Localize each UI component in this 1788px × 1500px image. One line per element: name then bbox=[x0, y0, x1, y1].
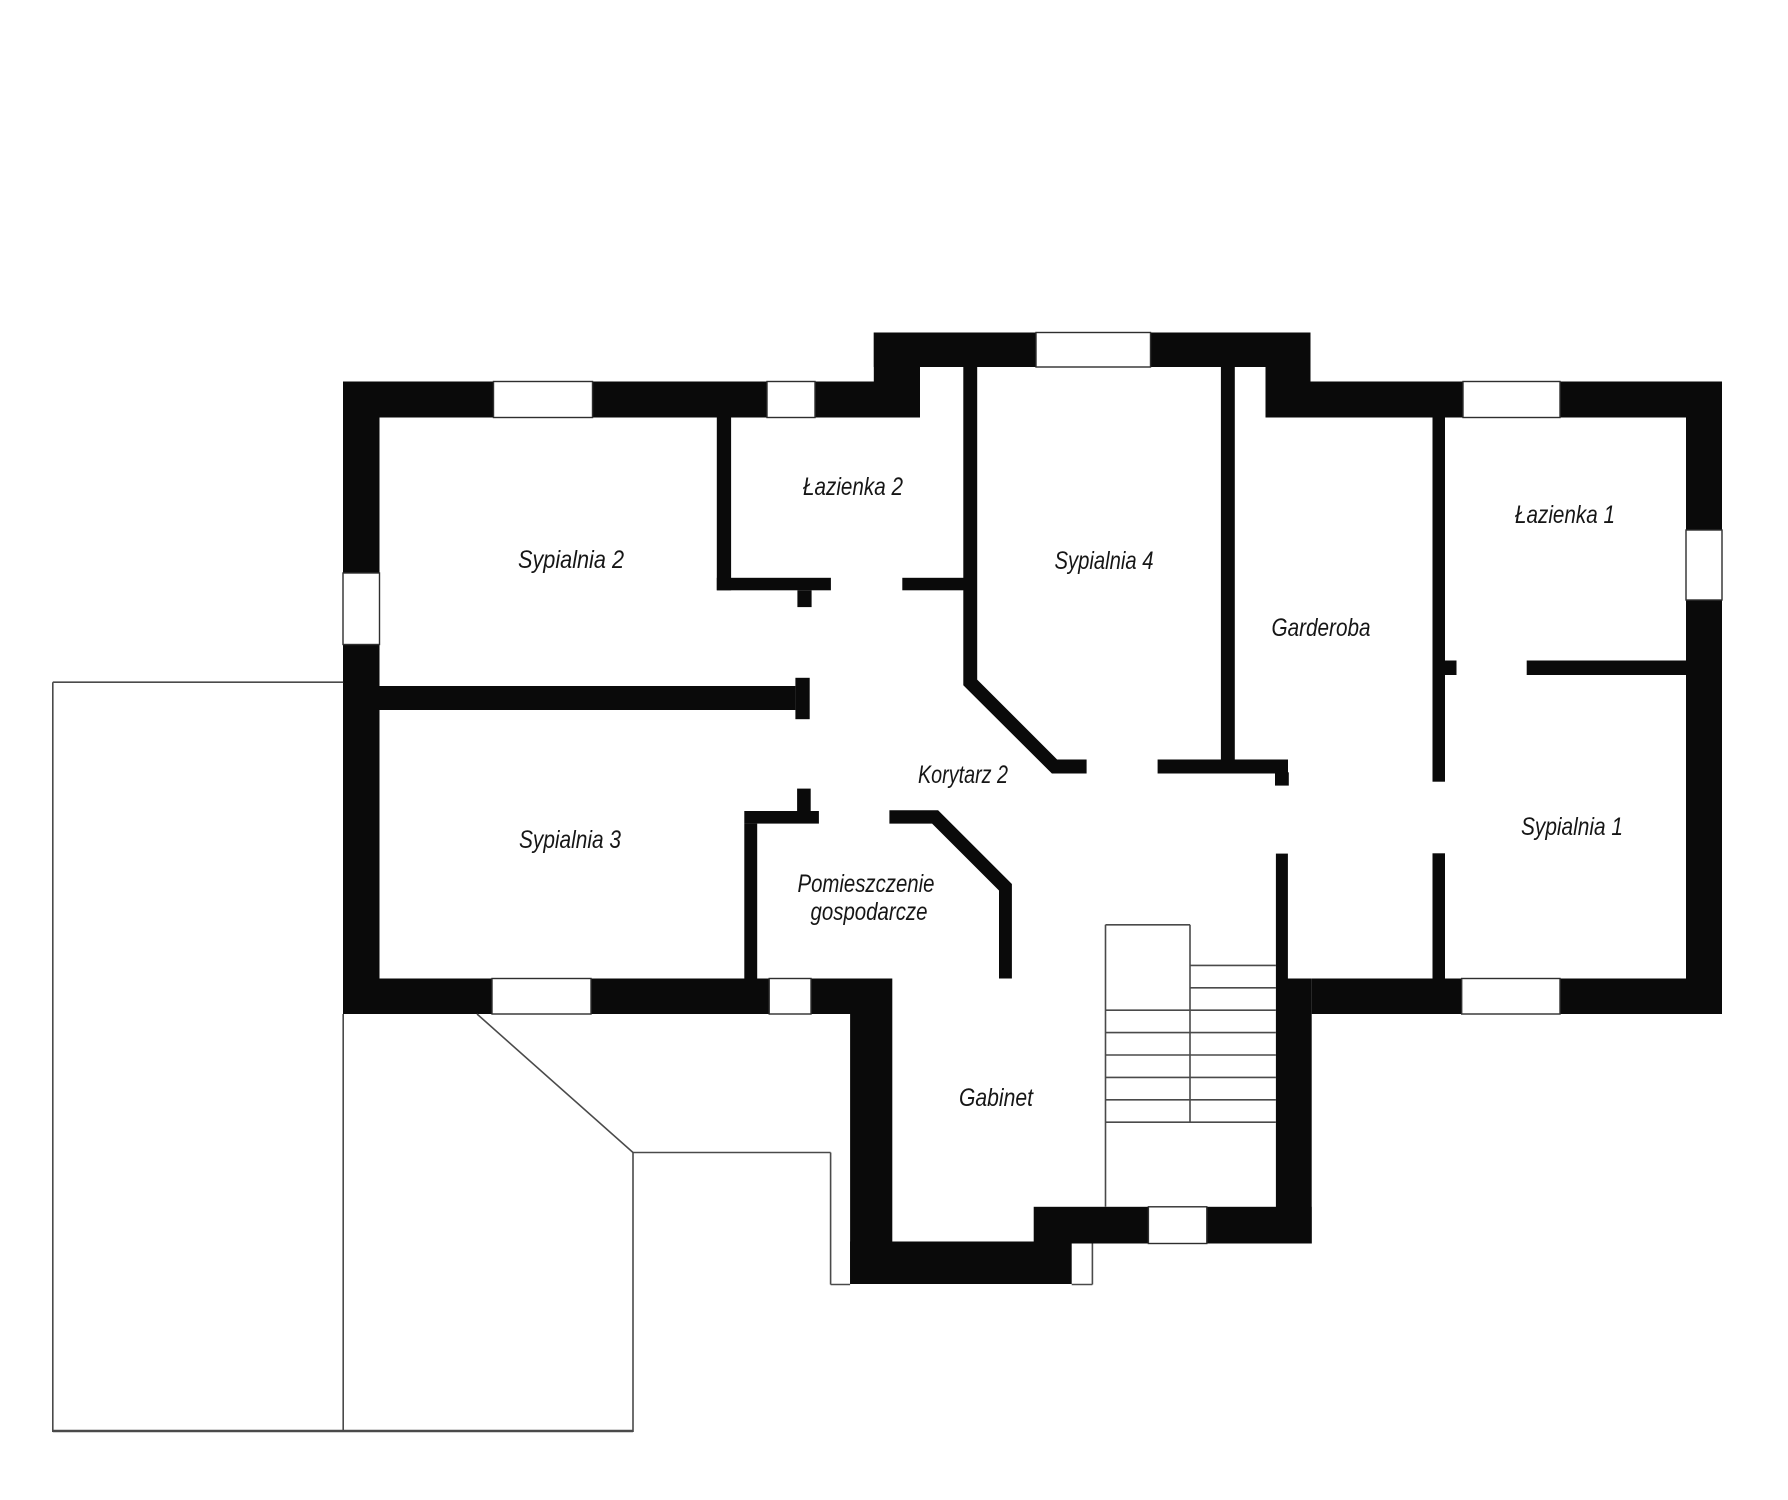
svg-text:Sypialnia 3: Sypialnia 3 bbox=[519, 826, 621, 854]
svg-text:Pomieszczenie: Pomieszczenie bbox=[798, 870, 935, 898]
svg-text:Sypialnia 2: Sypialnia 2 bbox=[518, 546, 624, 574]
svg-text:Garderoba: Garderoba bbox=[1272, 614, 1371, 642]
svg-text:Sypialnia 1: Sypialnia 1 bbox=[1521, 813, 1623, 841]
svg-text:Korytarz 2: Korytarz 2 bbox=[918, 761, 1008, 789]
svg-text:Łazienka 1: Łazienka 1 bbox=[1515, 501, 1615, 529]
svg-text:Sypialnia 4: Sypialnia 4 bbox=[1055, 547, 1154, 575]
svg-text:gospodarcze: gospodarcze bbox=[811, 898, 928, 926]
svg-text:Łazienka 2: Łazienka 2 bbox=[803, 473, 903, 501]
svg-text:Gabinet: Gabinet bbox=[959, 1084, 1034, 1112]
